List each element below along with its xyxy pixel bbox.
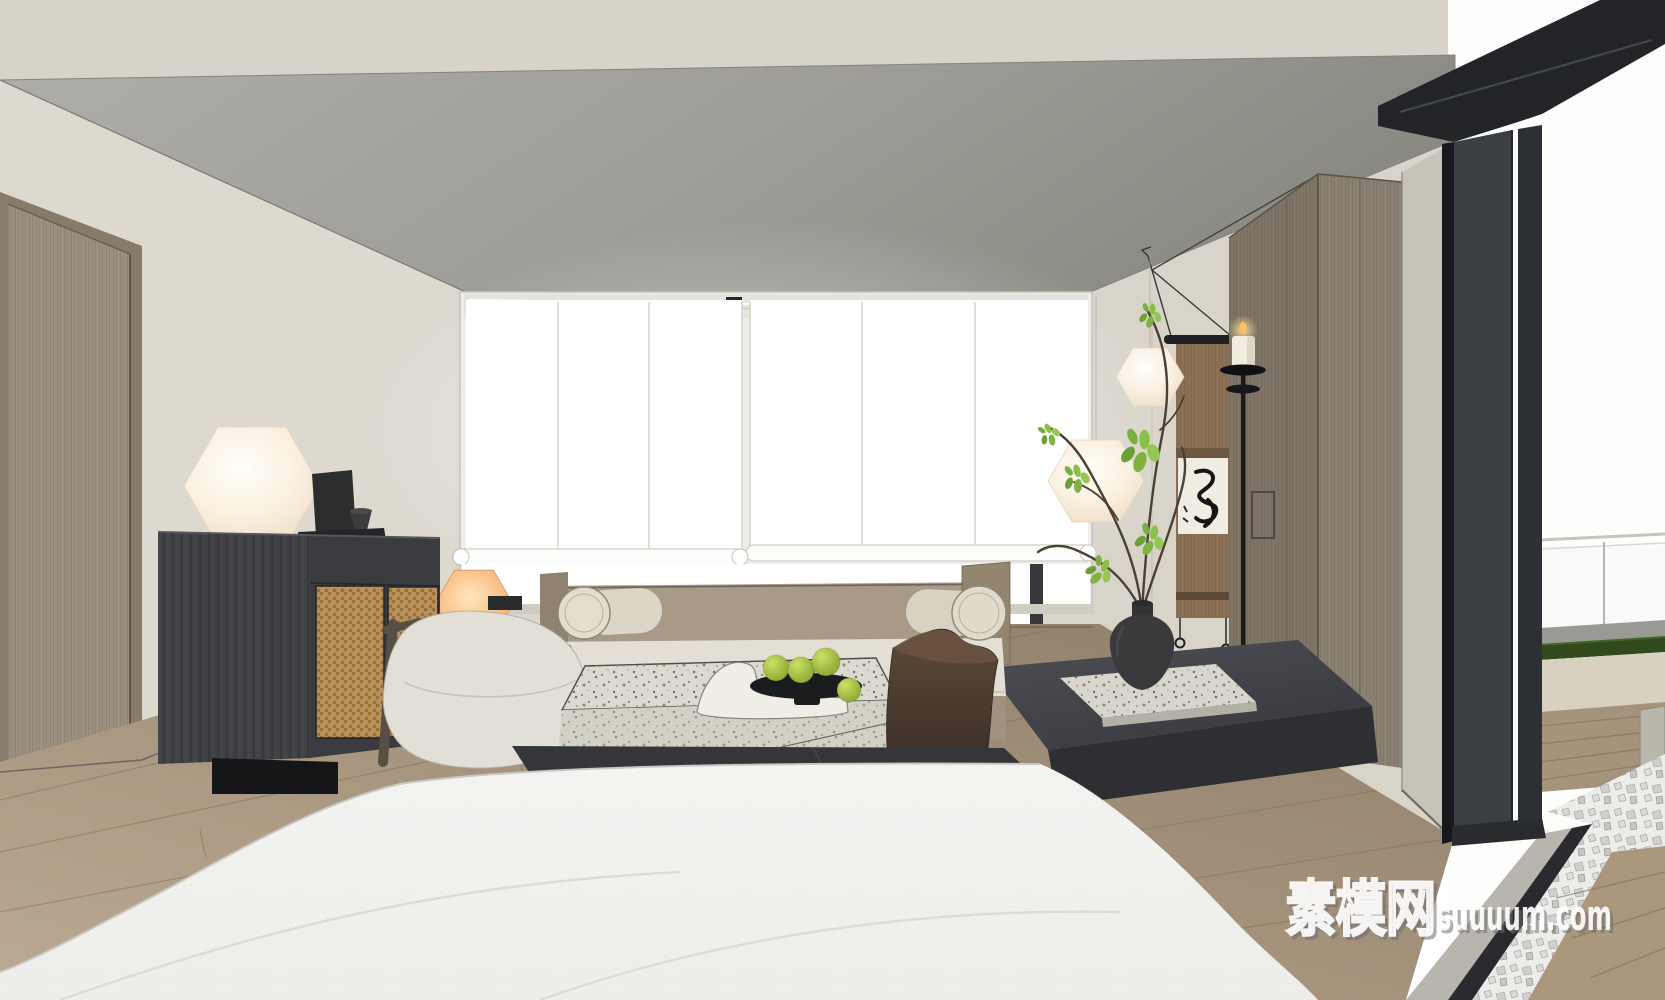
candle-dish [1220, 365, 1266, 376]
decor-frame [312, 470, 356, 536]
sideboard-plinth [212, 758, 338, 794]
bar-endcap [453, 549, 469, 565]
railing-glass [1540, 546, 1665, 630]
door-grain [8, 204, 130, 768]
armchair [383, 611, 585, 768]
blind-panel-left-group [466, 300, 742, 558]
bolster-right [905, 586, 1006, 640]
terrace-path [1540, 652, 1665, 712]
scroll-rod [1164, 335, 1238, 344]
render-viewport: 素模网 素模网 suuuum.com suuuum.com [0, 0, 1665, 1000]
candle-dish-lower [1226, 385, 1260, 394]
door-jamb-main [1454, 130, 1512, 839]
plate-foot [794, 694, 820, 705]
candle-shade [1247, 336, 1255, 368]
scroll-band-bottom [1176, 592, 1230, 600]
vase-rim [1132, 600, 1152, 606]
candle-pole [1241, 372, 1246, 678]
watermark-domain: suuuum.com [1437, 891, 1612, 940]
watermark-cn: 素模网 [1286, 875, 1436, 945]
rattan-door-left [316, 586, 384, 738]
door-jamb-second [1518, 125, 1542, 826]
bolster-left [558, 587, 663, 639]
cup-rim [350, 508, 372, 514]
blind-bottom-bar-left [452, 549, 748, 565]
candle-flame [1240, 322, 1247, 334]
entry-door [0, 192, 142, 778]
sideboard-grain [158, 532, 310, 764]
blind-bottom-bar-right [746, 545, 1096, 561]
blind-panel-right-group [750, 300, 1088, 556]
jamb-edge [1442, 142, 1454, 844]
bar-endcap [732, 549, 748, 565]
lamp-base [488, 596, 522, 610]
